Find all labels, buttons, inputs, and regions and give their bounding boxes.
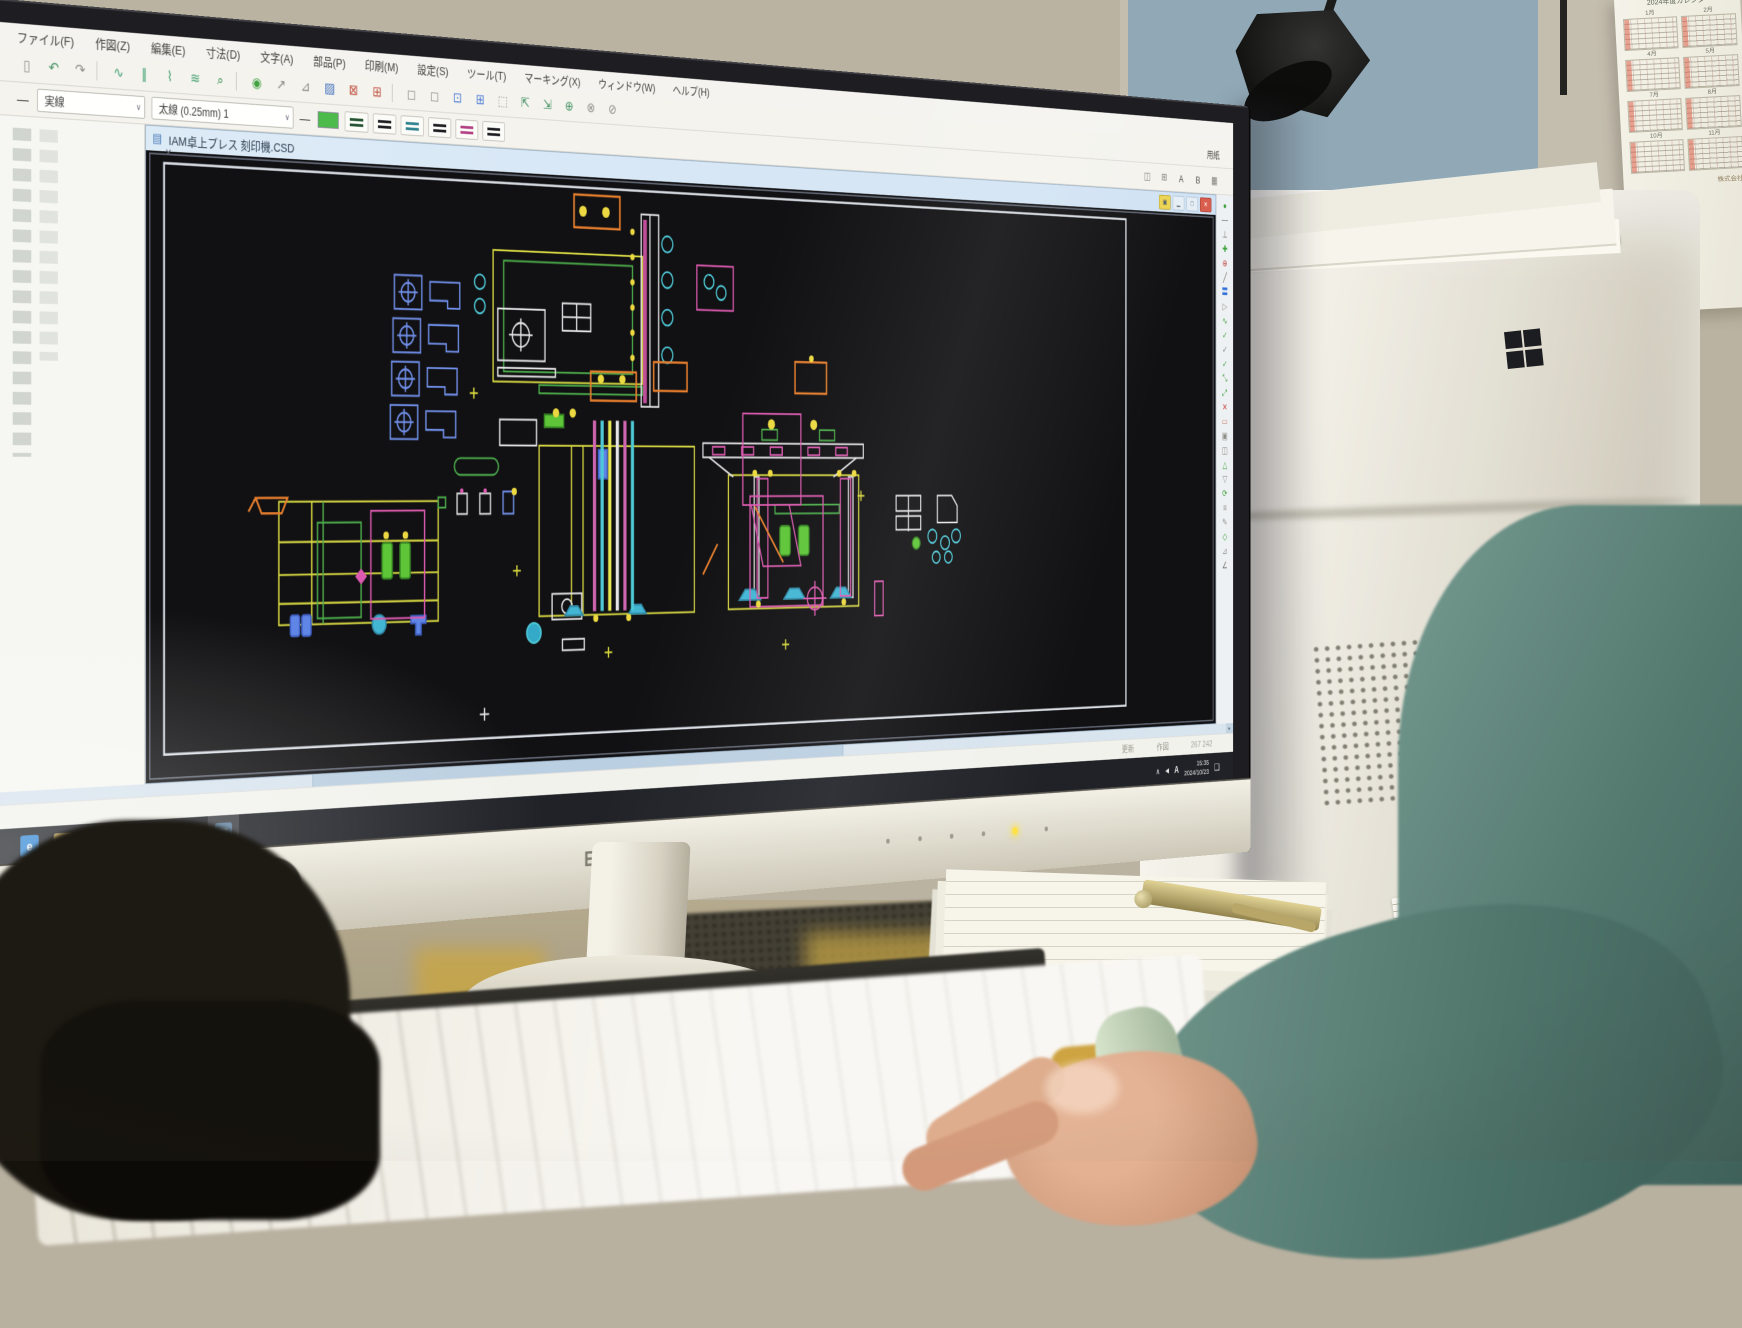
layer-icon[interactable]: ▣ — [1159, 194, 1171, 209]
tool-icon[interactable]: ◫ — [1220, 444, 1230, 456]
menu-item[interactable]: 作図(Z) — [95, 33, 130, 54]
tool-icon[interactable]: ✎ — [1220, 516, 1230, 528]
workspace: ▤ IAM卓上プレス 刻印機.CSD ▣ ▁ □ ✕ — [0, 105, 1233, 802]
system-tray: ∧ ◀ A 15:35 2024/10/23 ❏ — [1156, 757, 1233, 781]
tool-icon[interactable]: ≡ — [1220, 502, 1230, 514]
toolbar-icon[interactable]: ⌇ — [160, 64, 179, 88]
ime-indicator[interactable]: A — [1174, 764, 1179, 775]
close-button[interactable]: ✕ — [1200, 197, 1211, 212]
tool-icon[interactable]: ⤡ — [1220, 372, 1230, 384]
menu-item[interactable]: ウィンドウ(W) — [598, 74, 655, 95]
status-coordinates: 267 242 — [1191, 739, 1213, 749]
tool-icon[interactable]: ✓ — [1220, 343, 1230, 355]
toolbar-icon[interactable]: ∿ — [109, 60, 128, 84]
menu-item[interactable]: 寸法(D) — [206, 42, 240, 62]
monitor-button[interactable] — [1045, 826, 1048, 831]
tool-icon[interactable]: ◇ — [1220, 530, 1230, 542]
tool-icon[interactable]: ╱ — [1220, 271, 1230, 284]
toolbar-icon[interactable]: 用紙 — [1207, 145, 1220, 164]
tool-icon[interactable]: ▭ — [1220, 415, 1230, 427]
calendar-month: 10月 — [1629, 132, 1685, 174]
status-label: 更新 — [1122, 745, 1134, 755]
monitor-screen: ファイル(F)作図(Z)編集(E)寸法(D)文字(A)部品(P)印刷(M)設定(… — [0, 9, 1233, 878]
tool-icon[interactable]: ▣ — [1220, 430, 1230, 442]
toolbar-icon[interactable]: ⊠ — [345, 78, 363, 101]
volume-icon[interactable]: ◀ — [1165, 766, 1169, 775]
tool-icon[interactable]: ✕ — [1220, 401, 1230, 413]
toolbar-icon[interactable]: ↶ — [44, 55, 64, 80]
color-swatch[interactable] — [318, 111, 339, 129]
left-panel-icon-column — [13, 128, 31, 457]
toolbar-icon[interactable]: ⇲ — [539, 93, 556, 115]
tool-icon[interactable]: △ — [1220, 459, 1230, 471]
toolbar-icon[interactable]: ◻ — [426, 85, 443, 108]
toolbar-icon[interactable]: ⊡ — [449, 86, 466, 109]
maximize-button[interactable]: □ — [1186, 196, 1198, 211]
menu-item[interactable]: ヘルプ(H) — [673, 80, 710, 99]
toolbar-icon[interactable]: ≋ — [186, 66, 205, 90]
calendar-month-grid — [1625, 57, 1681, 92]
toolbar-icon[interactable]: ◫ — [1141, 166, 1154, 185]
line-sample: — — [17, 91, 29, 107]
lamp-pole — [1560, 0, 1567, 95]
calendar-month: 5月 — [1683, 47, 1739, 89]
tool-icon[interactable]: ✓ — [1220, 358, 1230, 370]
toolbar-icon[interactable]: ⇱ — [517, 92, 534, 114]
status-labels: 更新作図 — [1122, 739, 1191, 756]
tool-icon[interactable]: ✚ — [1220, 243, 1230, 256]
action-center-icon[interactable]: ❏ — [1214, 762, 1220, 773]
menu-item[interactable]: マーキング(X) — [524, 68, 580, 89]
linestyle-button[interactable] — [455, 119, 478, 140]
linewidth-select[interactable]: 太線 (0.25mm) 1 ∨ — [152, 97, 294, 129]
left-panel-icon-column — [40, 129, 58, 361]
toolbar-icon[interactable]: ⊞ — [1158, 168, 1171, 187]
menu-item[interactable]: 設定(S) — [417, 59, 448, 78]
monitor-button[interactable] — [918, 836, 922, 841]
chevron-down-icon: ∨ — [136, 102, 141, 113]
power-led — [1012, 827, 1017, 835]
toolbar-icon[interactable]: ⊘ — [604, 98, 620, 120]
annotation-icons: ◫⊞AB▦ — [1141, 166, 1221, 190]
toolbar-icon[interactable] — [236, 72, 241, 91]
tool-icon[interactable]: ✓ — [1220, 329, 1230, 341]
toolbar-icon[interactable]: B — [1192, 170, 1205, 189]
monitor-button[interactable] — [886, 838, 890, 843]
status-label: 作図 — [1157, 743, 1169, 753]
toolbar-icon[interactable]: ◉ — [248, 71, 266, 95]
tool-icon[interactable]: ∿ — [1220, 315, 1230, 327]
taskbar-time: 15:35 — [1197, 758, 1209, 767]
scroll-right-icon[interactable]: ▸ — [1226, 723, 1233, 733]
line-sample: — — [300, 111, 311, 126]
calendar-month-grid — [1627, 98, 1683, 133]
toolbar-icon[interactable]: ⊿ — [297, 75, 315, 98]
toolbar-icon[interactable]: ▦ — [1208, 171, 1220, 190]
window-controls: ▣ ▁ □ ✕ — [1159, 194, 1211, 212]
cad-drawing-svg — [146, 150, 1216, 783]
tool-icon[interactable]: ● — [1220, 199, 1230, 212]
linestyle-button[interactable] — [401, 115, 424, 136]
monitor-buttons — [886, 825, 1048, 845]
calendar-month: 1月 — [1623, 9, 1679, 51]
tool-icon[interactable]: ▷ — [1220, 300, 1230, 313]
drawing-canvas[interactable] — [146, 150, 1216, 783]
toolbar-icon[interactable]: ⊞ — [472, 88, 489, 111]
toolbar-icon[interactable] — [97, 61, 103, 80]
linestyle-button[interactable] — [428, 117, 451, 138]
menu-item[interactable]: 文字(A) — [260, 47, 293, 67]
linestyle-button[interactable] — [482, 121, 504, 142]
menu-item[interactable]: 編集(E) — [151, 38, 186, 59]
toolbar-icon[interactable]: ▯ — [17, 53, 37, 78]
minimize-button[interactable]: ▁ — [1173, 195, 1185, 210]
toolbar-icon[interactable]: ⊕ — [561, 95, 577, 117]
calendar-month-grid — [1683, 54, 1739, 89]
toolbar-icon[interactable]: ⌕ — [211, 68, 230, 92]
tray-chevron-icon[interactable]: ∧ — [1156, 766, 1160, 776]
toolbar-icon[interactable]: ⊗ — [583, 97, 599, 119]
toolbar-icon[interactable] — [392, 84, 397, 102]
linestyle-button[interactable] — [373, 113, 396, 134]
linestyle-buttons — [345, 111, 505, 142]
document-icon: ▤ — [152, 131, 162, 147]
toolbar-icon[interactable]: ⊞ — [368, 80, 386, 103]
tool-icon[interactable]: ⟳ — [1220, 487, 1230, 499]
calendar-month: 7月 — [1627, 91, 1683, 133]
windows-logo-icon — [1504, 328, 1548, 372]
menu-item[interactable]: 部品(P) — [313, 51, 345, 71]
linetype-select[interactable]: 実線 ∨ — [37, 89, 145, 119]
menu-item[interactable]: ファイル(F) — [17, 27, 74, 50]
monitor-button[interactable] — [981, 831, 984, 836]
left-panel — [0, 105, 145, 802]
calendar-month: 11月 — [1687, 129, 1742, 171]
chevron-down-icon: ∨ — [285, 112, 290, 122]
toolbar-icon[interactable]: ◻ — [403, 83, 420, 106]
calendar-month-grid — [1629, 139, 1685, 174]
calendar-month-grid — [1623, 16, 1679, 51]
tool-icon[interactable]: ⊿ — [1220, 545, 1230, 557]
calendar-month: 2月 — [1681, 6, 1737, 48]
hand-highlight — [1045, 1062, 1119, 1114]
toolbar-icon[interactable]: ↷ — [70, 57, 90, 81]
menu-item[interactable]: 印刷(M) — [365, 55, 398, 75]
toolbar-icon[interactable]: A — [1175, 169, 1188, 188]
toolbar-icon[interactable]: ⬚ — [494, 90, 511, 112]
tool-icon[interactable]: ⤢ — [1220, 387, 1230, 399]
tool-icon[interactable]: ⊥ — [1220, 228, 1230, 241]
calendar-month: 8月 — [1685, 88, 1741, 130]
panel-close-icon[interactable]: × — [165, 145, 172, 160]
monitor-button[interactable] — [950, 833, 953, 838]
taskbar-clock[interactable]: 15:35 2024/10/23 — [1184, 758, 1209, 778]
tool-icon[interactable]: ▽ — [1220, 473, 1230, 485]
tool-icon[interactable]: ∠ — [1220, 559, 1230, 571]
toolbar-icon[interactable]: ∥ — [135, 62, 154, 86]
calendar-month: 4月 — [1625, 50, 1681, 92]
toolbar-icon[interactable]: ↗ — [272, 73, 290, 96]
linestyle-button[interactable] — [345, 111, 369, 133]
menu-item[interactable]: ツール(T) — [467, 63, 506, 83]
tool-icon[interactable]: — — [1220, 214, 1230, 227]
calendar-month-grid — [1681, 13, 1737, 48]
toolbar-icon[interactable]: ▨ — [321, 77, 339, 100]
jacket-on-chair — [40, 1000, 380, 1220]
calendar-month-grid — [1685, 95, 1741, 130]
tool-icon[interactable]: 〓 — [1220, 286, 1230, 299]
calendar-months: 1月 2月 4月 5月 7月 8月 — [1621, 5, 1742, 175]
right-toolbar: ●—⊥✚⊕╱〓▷∿✓✓✓⤡⤢✕▭▣◫△▽⟳≡✎◇⊿∠ — [1216, 195, 1233, 724]
tool-icon[interactable]: ⊕ — [1220, 257, 1230, 270]
document-window: ▤ IAM卓上プレス 刻印機.CSD ▣ ▁ □ ✕ — [145, 125, 1216, 785]
calendar-footer: 株式会社 — [1629, 172, 1742, 188]
taskbar-date: 2024/10/23 — [1184, 768, 1209, 778]
calendar-month-grid — [1688, 136, 1742, 171]
